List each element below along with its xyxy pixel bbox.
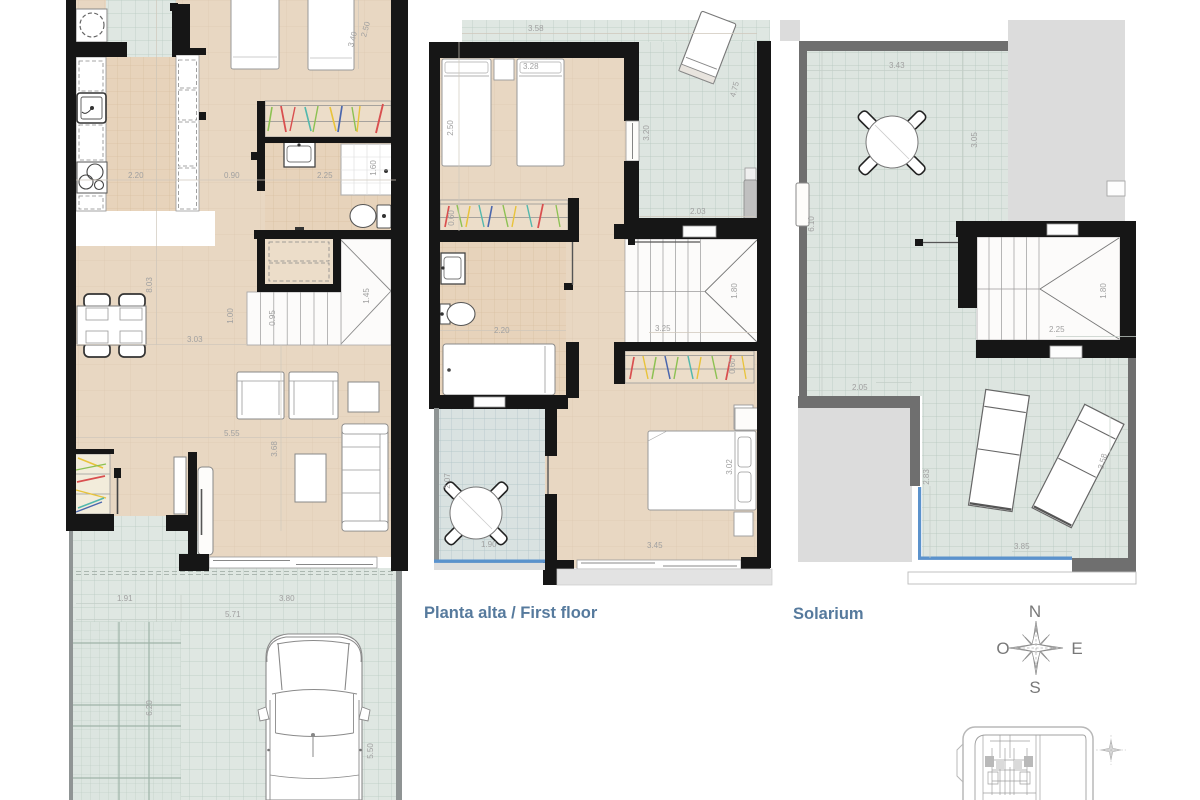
svg-text:E: E — [1071, 639, 1082, 658]
svg-text:2.07: 2.07 — [443, 473, 452, 489]
svg-text:1.91: 1.91 — [117, 594, 133, 603]
svg-text:5.50: 5.50 — [366, 743, 375, 759]
svg-text:2.20: 2.20 — [494, 326, 510, 335]
svg-text:3.05: 3.05 — [970, 132, 979, 148]
svg-text:S: S — [1029, 678, 1040, 697]
svg-text:1.00: 1.00 — [226, 308, 235, 324]
svg-text:0.60: 0.60 — [447, 210, 456, 226]
svg-text:1.60: 1.60 — [369, 160, 378, 176]
svg-text:O: O — [996, 639, 1009, 658]
svg-text:3.03: 3.03 — [187, 335, 203, 344]
svg-text:8.03: 8.03 — [145, 277, 154, 293]
svg-text:1.80: 1.80 — [730, 283, 739, 299]
svg-text:2.25: 2.25 — [317, 171, 333, 180]
svg-text:2.50: 2.50 — [446, 120, 455, 136]
svg-text:3.58: 3.58 — [528, 24, 544, 33]
svg-text:1.45: 1.45 — [362, 288, 371, 304]
svg-text:3.85: 3.85 — [1014, 542, 1030, 551]
svg-text:2.25: 2.25 — [1049, 325, 1065, 334]
svg-text:3.80: 3.80 — [279, 594, 295, 603]
svg-text:1.80: 1.80 — [1099, 283, 1108, 299]
svg-text:5.55: 5.55 — [224, 429, 240, 438]
svg-text:0.60: 0.60 — [728, 358, 737, 374]
svg-text:3.45: 3.45 — [647, 541, 663, 550]
svg-text:2.83: 2.83 — [922, 469, 931, 485]
svg-text:2.20: 2.20 — [128, 171, 144, 180]
svg-text:0.95: 0.95 — [268, 310, 277, 326]
svg-text:3.28: 3.28 — [523, 62, 539, 71]
svg-text:6.10: 6.10 — [807, 216, 816, 232]
svg-text:3.43: 3.43 — [889, 61, 905, 70]
svg-text:N: N — [1029, 602, 1041, 621]
svg-text:Planta alta / First floor: Planta alta / First floor — [424, 604, 598, 622]
svg-text:1.90: 1.90 — [481, 540, 497, 549]
svg-text:3.25: 3.25 — [655, 324, 671, 333]
svg-text:3.02: 3.02 — [725, 459, 734, 475]
svg-text:5.71: 5.71 — [225, 610, 241, 619]
svg-text:Solarium: Solarium — [793, 605, 864, 623]
svg-text:3.68: 3.68 — [270, 441, 279, 457]
svg-text:6.20: 6.20 — [145, 700, 154, 716]
svg-text:0.90: 0.90 — [224, 171, 240, 180]
svg-text:2.05: 2.05 — [852, 383, 868, 392]
svg-text:3.20: 3.20 — [642, 125, 651, 141]
svg-text:2.03: 2.03 — [690, 207, 706, 216]
